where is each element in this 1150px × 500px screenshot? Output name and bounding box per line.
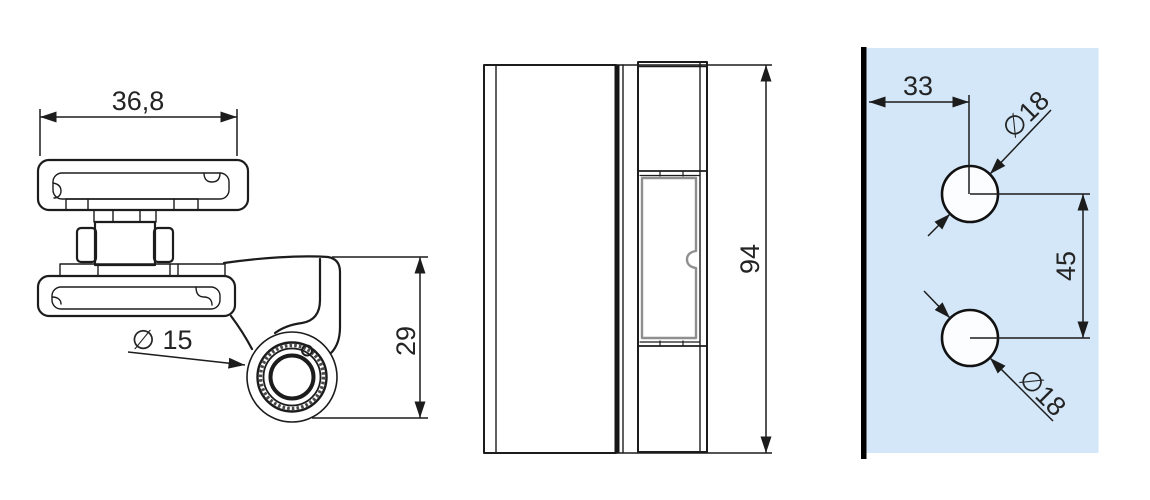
clamp-center-block: [95, 222, 155, 265]
bottom-rail-slot-hook: [196, 287, 212, 305]
clamp-stem-ticks: [113, 210, 140, 222]
top-rail-body: [38, 160, 248, 210]
arm-outer-edge: [224, 256, 340, 353]
arm-inner-hook: [275, 259, 320, 333]
dim-45-label: 45: [1051, 251, 1081, 281]
dim-width-label: 36,8: [112, 86, 165, 116]
hinge-body: [638, 62, 707, 452]
frame-profile-body: [484, 65, 616, 453]
technical-drawing-sheet: 36,8 ∅ 15 29 94 33: [0, 0, 1150, 500]
top-rail-slot-hook: [204, 173, 220, 182]
arm-left-join: [231, 316, 252, 349]
bottom-rail-slot-curl: [52, 297, 61, 304]
panel-edge-bar: [861, 47, 867, 459]
dim-94-label: 94: [735, 244, 765, 274]
bottom-rail-slot: [52, 287, 220, 309]
clamp-stem: [94, 210, 156, 222]
barrel-bore: [271, 356, 314, 399]
hinge-middle-section: [642, 178, 696, 338]
drilling-template: 33 45 ∅18 ∅18: [861, 47, 1099, 459]
top-rail-slot: [53, 173, 229, 199]
side-view: 36,8 ∅ 15 29: [38, 86, 428, 422]
dim-height-label: 29: [391, 326, 421, 356]
barrel-ring-outer: [258, 343, 327, 412]
top-plate: [66, 199, 198, 210]
dim-33-label: 33: [903, 71, 933, 101]
top-plate-ticks: [88, 199, 174, 210]
bottom-rail-body: [38, 276, 235, 316]
dim-bore-label: ∅ 15: [131, 325, 192, 355]
dim-width-extension-lines: [40, 109, 237, 156]
gasket-strip: [615, 65, 620, 453]
clamp-right-tab: [154, 228, 173, 262]
front-view: 94: [484, 62, 772, 453]
hinge-divider-ticks: [660, 171, 683, 346]
drawing-svg: 36,8 ∅ 15 29 94 33: [0, 0, 1150, 500]
clamp-left-tab: [77, 228, 96, 262]
